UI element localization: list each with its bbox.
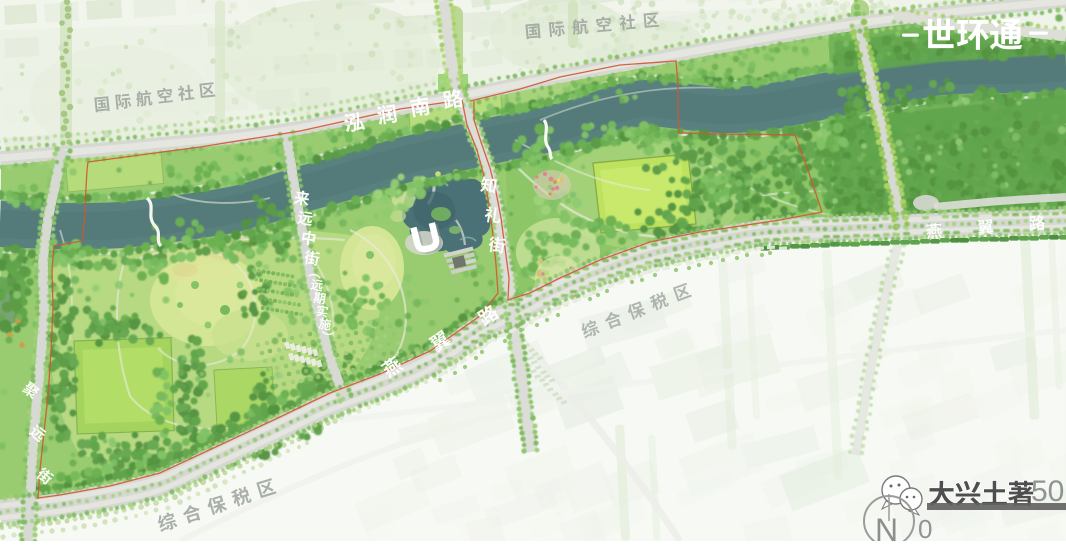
svg-text:50: 50 bbox=[1031, 475, 1064, 508]
svg-text:0: 0 bbox=[918, 514, 932, 541]
svg-text:N: N bbox=[875, 512, 898, 541]
